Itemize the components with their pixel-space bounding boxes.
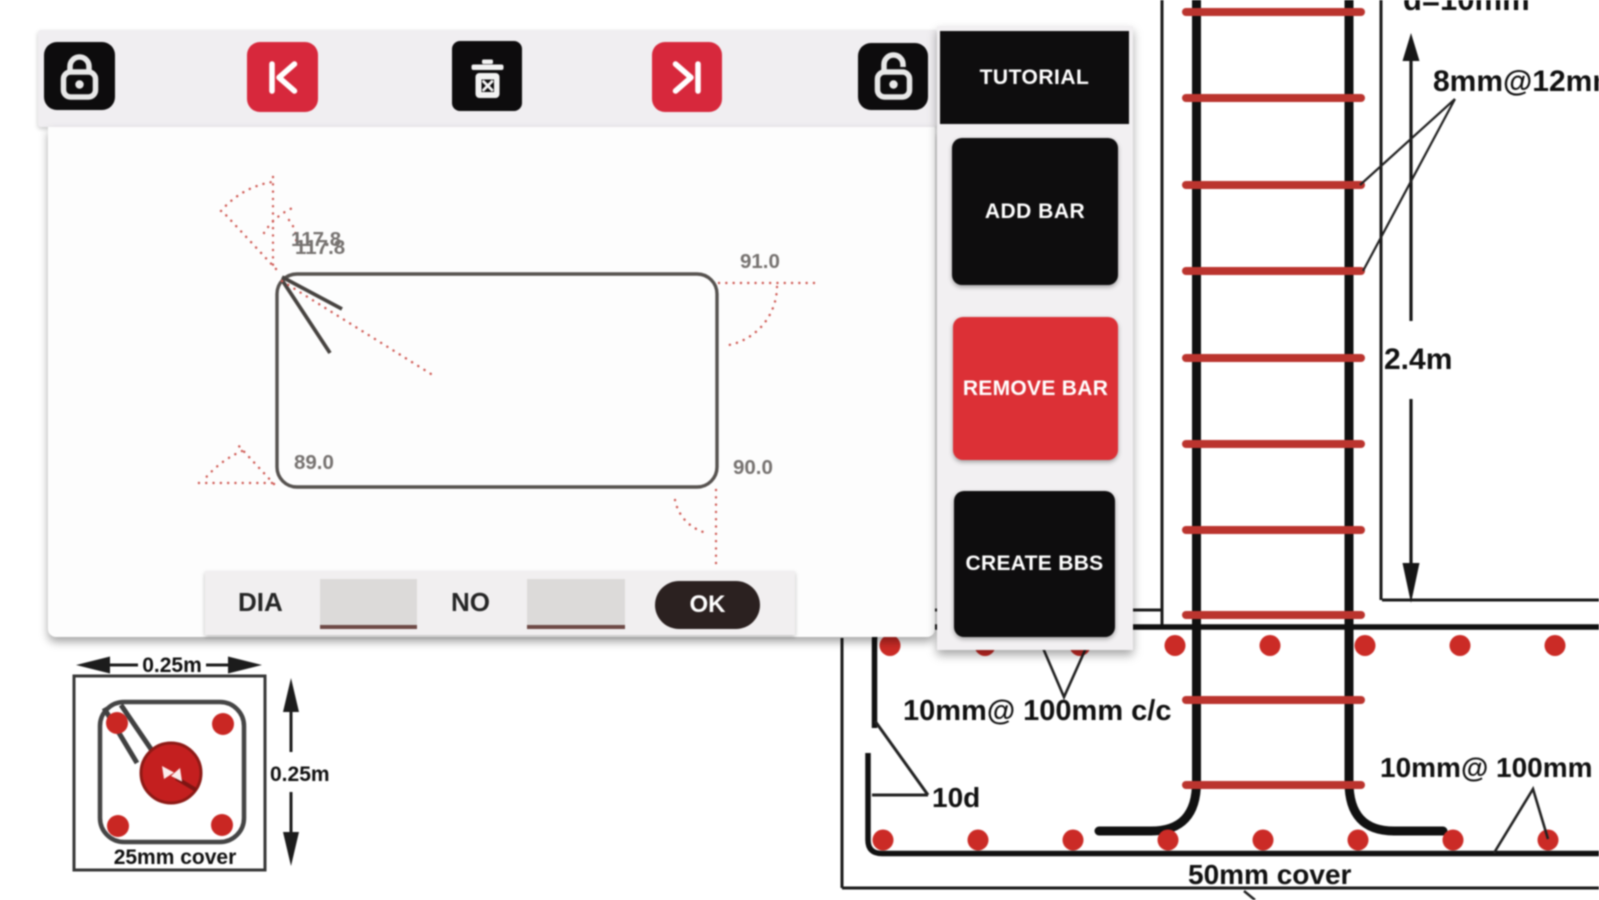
svg-text:89.0: 89.0 (294, 451, 334, 474)
svg-text:8mm@12mm c/c: 8mm@12mm c/c (1433, 65, 1599, 98)
svg-text:10d: 10d (932, 782, 980, 813)
svg-text:25mm cover: 25mm cover (114, 846, 237, 869)
svg-text:d=10mm: d=10mm (1403, 0, 1530, 17)
svg-text:91.0: 91.0 (740, 250, 780, 273)
svg-text:0.25m: 0.25m (142, 654, 202, 677)
svg-text:2.4m: 2.4m (1384, 343, 1452, 376)
svg-text:117.8: 117.8 (295, 236, 345, 259)
svg-text:0.25m: 0.25m (270, 763, 330, 786)
svg-text:50mm cover: 50mm cover (1188, 859, 1352, 890)
svg-text:10mm@ 100mm c/c: 10mm@ 100mm c/c (903, 695, 1172, 727)
svg-text:90.0: 90.0 (733, 456, 773, 479)
svg-text:10mm@ 100mm: 10mm@ 100mm (1380, 752, 1593, 783)
